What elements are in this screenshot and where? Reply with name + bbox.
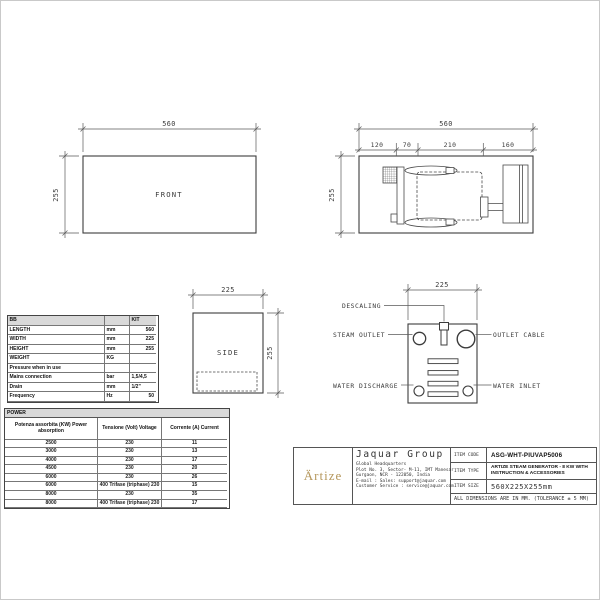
power-cell: 17: [162, 457, 227, 466]
item-code-label: ITEM CODE: [451, 448, 487, 462]
power-table: POWER Potenza assorbita (KW) Power absor…: [4, 408, 230, 509]
spec-row-unit: mm: [105, 335, 130, 345]
spec-row-unit: mm: [105, 383, 130, 393]
item-size-value: 560X225X255mm: [491, 483, 552, 491]
spec-row-value: 1/2": [130, 383, 156, 393]
steam-outlet-port: [413, 332, 425, 344]
power-cell: 2500: [5, 440, 98, 449]
spec-row-value: 225: [130, 335, 156, 345]
power-cell: 6000: [5, 482, 98, 491]
power-cell: 400 Trifase (triphase) 230: [98, 500, 162, 509]
tank-hidden-outline: [417, 172, 482, 220]
spec-row-label: Mains connection: [8, 373, 105, 383]
item-size-label: ITEM SIZE: [451, 480, 487, 493]
power-cell: 230: [98, 465, 162, 474]
top-view-drawing: 560 120 70 210 160 255: [328, 120, 538, 238]
front-width-dim: 560: [162, 120, 175, 128]
power-cell: 6000: [5, 474, 98, 483]
steam-outlet-label: STEAM OUTLET: [333, 332, 385, 339]
spec-row-value: 560: [130, 326, 156, 336]
panel-width-dim: 225: [435, 281, 448, 289]
power-header-absorption: Potenza assorbita (KW) Power absorption: [5, 418, 98, 440]
spec-row-value: [130, 354, 156, 364]
top-seg-dim-2: 70: [403, 141, 412, 149]
power-cell: 26: [162, 474, 227, 483]
power-cell: 4500: [5, 465, 98, 474]
spec-row-label: WEIGHT: [8, 354, 105, 364]
power-cell: 230: [98, 448, 162, 457]
spec-row-label: Frequency: [8, 392, 105, 402]
spec-row-label: Pressure when in use: [8, 364, 105, 374]
power-cell: 35: [162, 491, 227, 500]
top-height-dim: 255: [328, 188, 336, 201]
connector-part: [481, 197, 489, 217]
spec-row-label: Drain: [8, 383, 105, 393]
power-cell: 8000: [5, 491, 98, 500]
power-cell: 230: [98, 457, 162, 466]
spec-table: BB KIT LENGTH mm 560 WIDTH mm 225 HEIGHT…: [7, 315, 159, 403]
power-cell: 17: [162, 500, 227, 509]
company-name: Jaquar Group: [356, 449, 447, 461]
power-cell: 15: [162, 482, 227, 491]
spec-header-unit: [105, 316, 130, 326]
outlet-cable-label: OUTLET CABLE: [493, 332, 545, 339]
spec-row-value: 1,5/4,5: [130, 373, 156, 383]
water-discharge-label: WATER DISCHARGE: [333, 383, 398, 390]
side-width-dim: 225: [221, 286, 234, 294]
power-cell: 13: [162, 448, 227, 457]
mounting-plate-part: [397, 167, 404, 224]
power-cell: 230: [98, 474, 162, 483]
spec-row-unit: [105, 364, 130, 374]
tolerance-note: ALL DIMENSIONS ARE IN MM. (TOLERANCE ± 5…: [451, 494, 596, 504]
power-header-voltage: Tensione (Volt) Voltage: [98, 418, 162, 440]
side-hidden-outline: [197, 372, 257, 391]
side-view-drawing: SIDE 225 255: [188, 286, 284, 398]
power-cell: 20: [162, 465, 227, 474]
front-view-label: FRONT: [155, 190, 183, 199]
clamp-bottom-part: [446, 219, 454, 225]
item-info-cell: ITEM CODE ASG-WHT-PIUVAP5006 ITEM TYPE A…: [451, 448, 596, 504]
top-seg-dim-1: 120: [371, 141, 384, 149]
spec-row-label: LENGTH: [8, 326, 105, 336]
water-inlet-label: WATER INLET: [493, 383, 541, 390]
power-cell: 230: [98, 491, 162, 500]
side-height-dim: 255: [266, 346, 274, 359]
descaling-label: DESCALING: [342, 303, 381, 310]
technical-drawing-layer: FRONT 560 255 5: [0, 0, 600, 600]
item-code-value: ASG-WHT-PIUVAP5006: [491, 452, 562, 459]
item-type-label: ITEM TYPE: [451, 463, 487, 479]
brand-cell: Ärtize: [294, 448, 353, 504]
spec-row-value: 50: [130, 392, 156, 402]
power-header-current: Corrente (A) Current: [162, 418, 227, 440]
power-cell: 11: [162, 440, 227, 449]
top-seg-dim-4: 160: [502, 141, 515, 149]
item-type-value: ARTIZE STEAM GENERATOR - 8 KW WITH INSTR…: [491, 465, 596, 476]
power-cell: 4000: [5, 457, 98, 466]
top-view-internals: [383, 165, 528, 227]
power-cell: 8000: [5, 500, 98, 509]
spec-row-unit: KG: [105, 354, 130, 364]
spec-row-value: 255: [130, 345, 156, 355]
spec-row-unit: mm: [105, 326, 130, 336]
stem-part: [488, 204, 503, 211]
title-block: Ärtize Jaquar Group Global Headquarters …: [293, 447, 597, 505]
clamp-top-part: [446, 168, 454, 174]
water-discharge-port: [414, 386, 424, 396]
spec-row-label: WIDTH: [8, 335, 105, 345]
front-view-drawing: FRONT 560 255: [52, 120, 261, 238]
top-width-dim: 560: [439, 120, 452, 128]
company-cell: Jaquar Group Global Headquarters Plot No…: [353, 448, 451, 504]
top-seg-dim-3: 210: [444, 141, 457, 149]
spec-row-value: [130, 364, 156, 374]
control-box-part: [503, 165, 528, 223]
power-table-title: POWER: [5, 409, 229, 418]
artize-logo: Ärtize: [304, 468, 342, 484]
side-view-label: SIDE: [217, 348, 239, 357]
power-cell: 230: [98, 440, 162, 449]
power-cell: 3000: [5, 448, 98, 457]
connection-panel-drawing: 225: [333, 281, 545, 403]
water-inlet-port: [463, 386, 473, 396]
spec-row-unit: mm: [105, 345, 130, 355]
spec-row-unit: bar: [105, 373, 130, 383]
spec-header-kit: KIT: [130, 316, 156, 326]
spec-row-unit: Hz: [105, 392, 130, 402]
address-line: Customer Service : service@jaquar.com: [356, 484, 447, 490]
datasheet-page: FRONT 560 255 5: [0, 0, 600, 600]
heater-fins-part: [383, 167, 397, 183]
descaling-cap-part: [440, 323, 449, 331]
power-cell: 400 Trifase (triphase) 230: [98, 482, 162, 491]
outlet-cable-port: [457, 330, 475, 348]
bracket-part: [391, 214, 397, 222]
descaling-body-part: [441, 330, 447, 345]
vent-slots: [428, 359, 458, 397]
spec-header-name: BB: [8, 316, 105, 326]
front-height-dim: 255: [52, 188, 60, 201]
spec-row-label: HEIGHT: [8, 345, 105, 355]
